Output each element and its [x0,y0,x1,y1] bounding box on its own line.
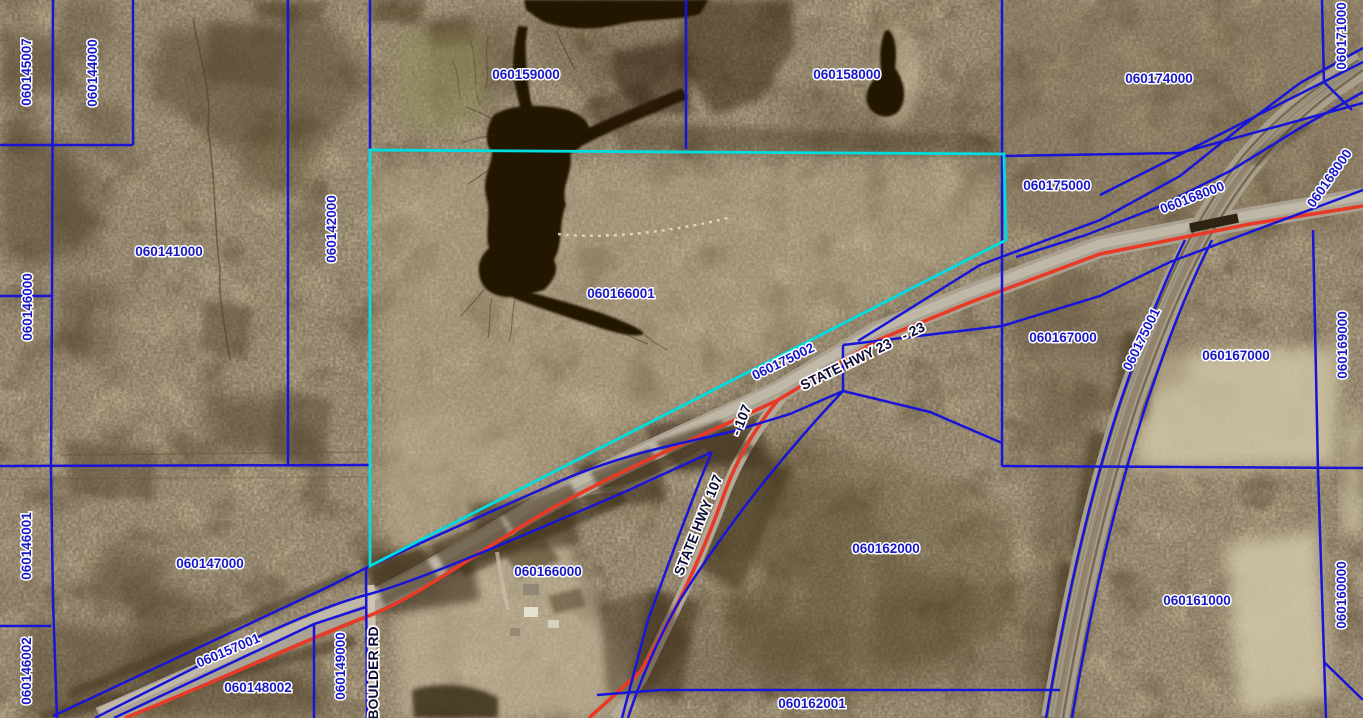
svg-text:BOULDER RD: BOULDER RD [365,626,381,718]
svg-text:060171000: 060171000 [1334,2,1349,70]
svg-text:060146000: 060146000 [20,273,35,341]
svg-text:060158000: 060158000 [813,67,881,82]
svg-text:060161000: 060161000 [1163,593,1231,608]
svg-text:060147000: 060147000 [176,556,244,571]
svg-text:060146001: 060146001 [19,512,34,580]
svg-text:060175000: 060175000 [1023,178,1091,193]
svg-text:060162001: 060162001 [778,696,846,711]
svg-text:060145007: 060145007 [19,38,34,106]
svg-text:060142000: 060142000 [324,195,339,263]
svg-text:060144000: 060144000 [85,39,100,107]
svg-text:060141000: 060141000 [135,244,203,259]
svg-text:060167000: 060167000 [1202,348,1270,363]
svg-text:060162000: 060162000 [852,541,920,556]
svg-text:060167000: 060167000 [1029,330,1097,345]
svg-text:060149000: 060149000 [333,632,348,700]
svg-text:060159000: 060159000 [492,67,560,82]
svg-text:060166001: 060166001 [587,286,655,301]
svg-text:060160000: 060160000 [1334,561,1349,629]
svg-text:060166000: 060166000 [514,564,582,579]
svg-text:060169000: 060169000 [1335,311,1350,379]
svg-text:060148002: 060148002 [224,680,292,695]
svg-text:060146002: 060146002 [19,637,34,705]
svg-text:060174000: 060174000 [1125,71,1193,86]
